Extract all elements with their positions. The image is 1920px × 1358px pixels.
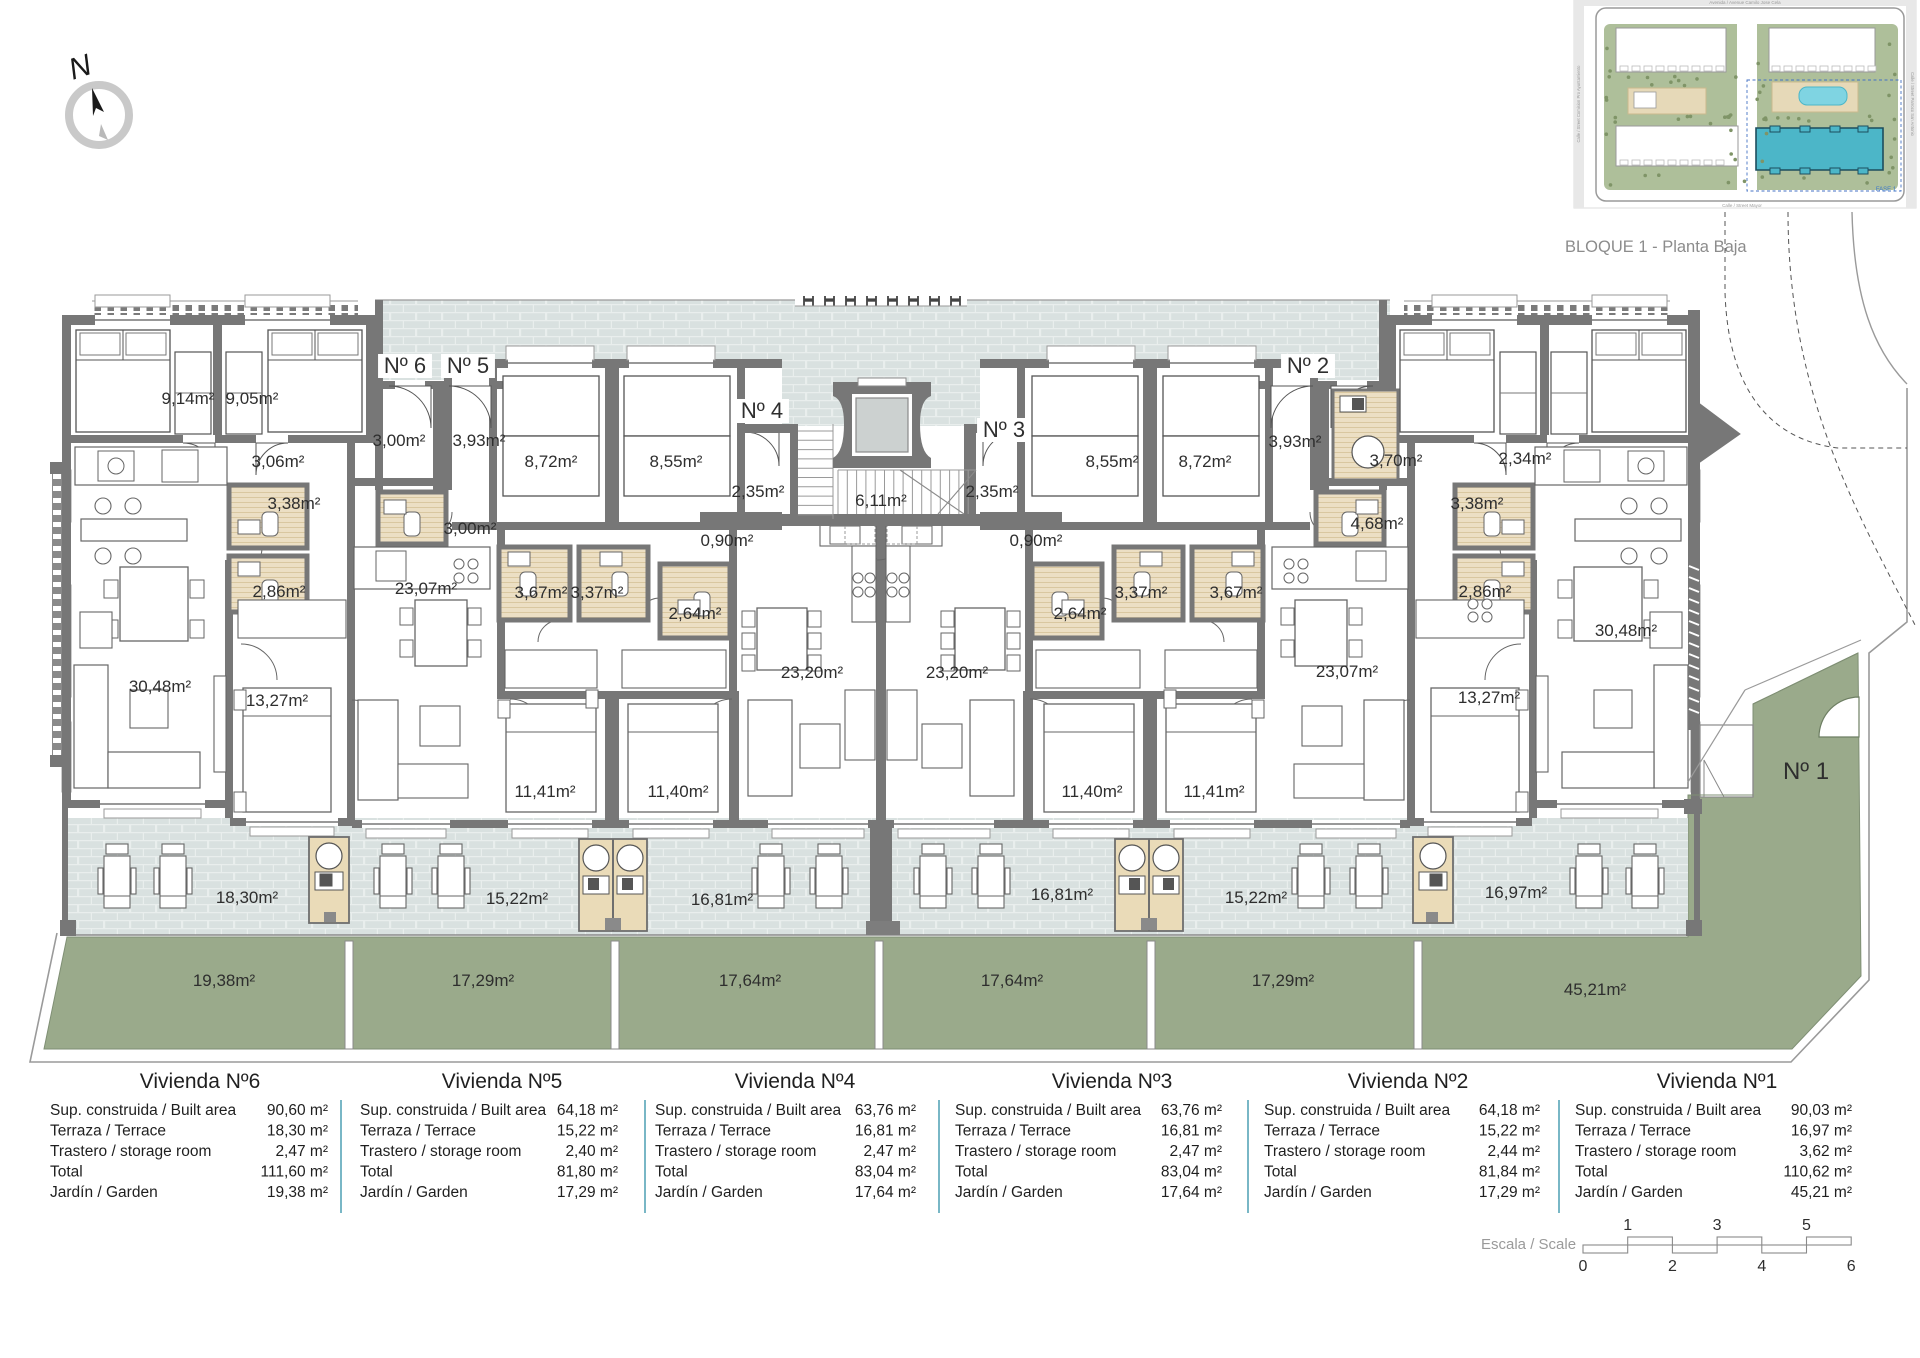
svg-text:17,64m²: 17,64m²: [981, 971, 1044, 990]
svg-text:23,07m²: 23,07m²: [1316, 662, 1379, 681]
svg-text:9,14m²: 9,14m²: [162, 389, 215, 408]
svg-text:Terraza / Terrace: Terraza / Terrace: [1264, 1123, 1380, 1140]
svg-text:23,07m²: 23,07m²: [395, 579, 458, 598]
svg-text:3,70m²: 3,70m²: [1370, 451, 1423, 470]
svg-text:19,38m²: 19,38m²: [193, 971, 256, 990]
svg-text:5: 5: [1802, 1217, 1811, 1234]
svg-text:13,27m²: 13,27m²: [246, 691, 309, 710]
svg-text:Terraza / Terrace: Terraza / Terrace: [955, 1123, 1071, 1140]
svg-text:3,38m²: 3,38m²: [268, 494, 321, 513]
svg-text:30,48m²: 30,48m²: [1595, 621, 1658, 640]
svg-text:83,04 m²: 83,04 m²: [855, 1164, 916, 1181]
svg-text:Nº 3: Nº 3: [983, 417, 1025, 442]
svg-text:15,22m²: 15,22m²: [1225, 888, 1288, 907]
svg-text:11,40m²: 11,40m²: [1061, 782, 1122, 801]
svg-text:2,64m²: 2,64m²: [1054, 604, 1107, 623]
svg-text:15,22m²: 15,22m²: [486, 889, 549, 908]
svg-text:19,38 m²: 19,38 m²: [267, 1184, 328, 1201]
svg-text:81,84 m²: 81,84 m²: [1479, 1164, 1540, 1181]
svg-text:Total: Total: [655, 1164, 688, 1181]
svg-text:18,30 m²: 18,30 m²: [267, 1123, 328, 1140]
svg-text:Avenida / Avenue Camilo Jose C: Avenida / Avenue Camilo Jose Cela: [1709, 0, 1781, 5]
svg-text:2,40 m²: 2,40 m²: [565, 1143, 618, 1160]
svg-text:16,97m²: 16,97m²: [1485, 883, 1548, 902]
svg-text:2,35m²: 2,35m²: [966, 482, 1019, 501]
svg-text:Vivienda Nº2: Vivienda Nº2: [1348, 1070, 1469, 1093]
svg-text:11,41m²: 11,41m²: [1183, 782, 1244, 801]
svg-text:3,93m²: 3,93m²: [453, 431, 506, 450]
svg-text:2,34m²: 2,34m²: [1499, 449, 1552, 468]
svg-text:63,76 m²: 63,76 m²: [855, 1102, 916, 1119]
svg-text:8,72m²: 8,72m²: [525, 452, 578, 471]
svg-text:15,22 m²: 15,22 m²: [557, 1123, 618, 1140]
svg-text:Nº 1: Nº 1: [1783, 758, 1829, 785]
svg-text:17,64 m²: 17,64 m²: [855, 1184, 916, 1201]
svg-text:Vivienda Nº5: Vivienda Nº5: [442, 1070, 563, 1093]
svg-text:23,20m²: 23,20m²: [926, 663, 989, 682]
svg-text:Terraza / Terrace: Terraza / Terrace: [655, 1123, 771, 1140]
svg-text:3,93m²: 3,93m²: [1269, 432, 1322, 451]
svg-text:Trastero / storage room: Trastero / storage room: [1575, 1143, 1736, 1160]
svg-text:2,47 m²: 2,47 m²: [863, 1143, 916, 1160]
svg-text:64,18 m²: 64,18 m²: [557, 1102, 618, 1119]
svg-text:83,04 m²: 83,04 m²: [1161, 1164, 1222, 1181]
svg-text:Sup. construida / Built area: Sup. construida / Built area: [1575, 1102, 1761, 1119]
svg-text:16,81 m²: 16,81 m²: [855, 1123, 916, 1140]
svg-text:23,20m²: 23,20m²: [781, 663, 844, 682]
svg-text:Total: Total: [955, 1164, 988, 1181]
svg-text:16,81m²: 16,81m²: [691, 890, 754, 909]
svg-text:Total: Total: [360, 1164, 393, 1181]
svg-text:6: 6: [1847, 1258, 1856, 1275]
svg-text:8,55m²: 8,55m²: [650, 452, 703, 471]
svg-text:Jardín / Garden: Jardín / Garden: [1264, 1184, 1372, 1201]
svg-text:Terraza / Terrace: Terraza / Terrace: [1575, 1123, 1691, 1140]
svg-text:Trastero / storage room: Trastero / storage room: [655, 1143, 816, 1160]
svg-text:3,06m²: 3,06m²: [252, 452, 305, 471]
svg-text:Nº 5: Nº 5: [447, 353, 489, 378]
svg-text:Escala / Scale: Escala / Scale: [1481, 1236, 1576, 1253]
svg-text:Total: Total: [1264, 1164, 1297, 1181]
svg-text:13,27m²: 13,27m²: [1458, 688, 1521, 707]
svg-text:Trastero / storage room: Trastero / storage room: [360, 1143, 521, 1160]
svg-text:3,00m²: 3,00m²: [373, 431, 426, 450]
svg-text:Vivienda Nº1: Vivienda Nº1: [1657, 1070, 1778, 1093]
svg-text:4: 4: [1757, 1258, 1766, 1275]
svg-text:45,21 m²: 45,21 m²: [1791, 1184, 1852, 1201]
svg-text:18,30m²: 18,30m²: [216, 888, 279, 907]
svg-text:Jardín / Garden: Jardín / Garden: [955, 1184, 1063, 1201]
svg-text:2,35m²: 2,35m²: [732, 482, 785, 501]
svg-text:Jardín / Garden: Jardín / Garden: [360, 1184, 468, 1201]
svg-text:15,22 m²: 15,22 m²: [1479, 1123, 1540, 1140]
svg-text:Sup. construida / Built area: Sup. construida / Built area: [360, 1102, 546, 1119]
svg-text:Nº 2: Nº 2: [1287, 353, 1329, 378]
svg-text:Calle / Street Mayor: Calle / Street Mayor: [1722, 203, 1762, 208]
svg-text:6,11m²: 6,11m²: [855, 491, 907, 510]
svg-text:Trastero / storage room: Trastero / storage room: [50, 1143, 211, 1160]
svg-text:Jardín / Garden: Jardín / Garden: [1575, 1184, 1683, 1201]
svg-text:111,60 m²: 111,60 m²: [261, 1164, 329, 1181]
svg-text:17,29 m²: 17,29 m²: [1479, 1184, 1540, 1201]
svg-text:3,38m²: 3,38m²: [1451, 494, 1504, 513]
svg-text:Trastero / storage room: Trastero / storage room: [955, 1143, 1116, 1160]
svg-text:3,00m²: 3,00m²: [444, 519, 497, 538]
svg-text:2,86m²: 2,86m²: [1459, 582, 1512, 601]
svg-text:Sup. construida / Built area: Sup. construida / Built area: [655, 1102, 841, 1119]
svg-text:Trastero / storage room: Trastero / storage room: [1264, 1143, 1425, 1160]
svg-text:17,29 m²: 17,29 m²: [557, 1184, 618, 1201]
svg-text:16,97 m²: 16,97 m²: [1791, 1123, 1852, 1140]
svg-text:Terraza / Terrace: Terraza / Terrace: [50, 1123, 166, 1140]
svg-text:3,67m²: 3,67m²: [515, 583, 568, 602]
svg-text:64,18 m²: 64,18 m²: [1479, 1102, 1540, 1119]
svg-text:Vivienda Nº6: Vivienda Nº6: [140, 1070, 261, 1093]
svg-text:8,72m²: 8,72m²: [1179, 452, 1232, 471]
svg-text:Jardín / Garden: Jardín / Garden: [50, 1184, 158, 1201]
svg-text:81,80 m²: 81,80 m²: [557, 1164, 618, 1181]
svg-text:3,62 m²: 3,62 m²: [1799, 1143, 1852, 1160]
svg-text:63,76 m²: 63,76 m²: [1161, 1102, 1222, 1119]
svg-text:1: 1: [1623, 1217, 1632, 1234]
svg-text:90,60 m²: 90,60 m²: [267, 1102, 328, 1119]
svg-text:Calle / Street Parroco San Ant: Calle / Street Parroco San Antonio: [1910, 72, 1915, 136]
svg-text:Nº 6: Nº 6: [384, 353, 426, 378]
svg-text:17,64m²: 17,64m²: [719, 971, 782, 990]
svg-text:0: 0: [1579, 1258, 1588, 1275]
svg-text:Jardín / Garden: Jardín / Garden: [655, 1184, 763, 1201]
svg-text:3,67m²: 3,67m²: [1210, 583, 1263, 602]
svg-text:FASE 1: FASE 1: [1876, 187, 1897, 193]
svg-text:17,64 m²: 17,64 m²: [1161, 1184, 1222, 1201]
svg-text:0,90m²: 0,90m²: [1010, 531, 1063, 550]
svg-text:17,29m²: 17,29m²: [452, 971, 515, 990]
svg-text:16,81m²: 16,81m²: [1031, 885, 1094, 904]
svg-text:2,47 m²: 2,47 m²: [275, 1143, 328, 1160]
svg-text:0,90m²: 0,90m²: [701, 531, 754, 550]
svg-text:2,86m²: 2,86m²: [253, 582, 306, 601]
svg-text:8,55m²: 8,55m²: [1086, 452, 1139, 471]
svg-text:11,41m²: 11,41m²: [514, 782, 575, 801]
svg-text:Sup. construida / Built area: Sup. construida / Built area: [955, 1102, 1141, 1119]
svg-text:110,62 m²: 110,62 m²: [1783, 1164, 1852, 1181]
svg-text:Vivienda Nº3: Vivienda Nº3: [1052, 1070, 1173, 1093]
svg-text:2: 2: [1668, 1258, 1677, 1275]
svg-text:2,47 m²: 2,47 m²: [1169, 1143, 1222, 1160]
svg-text:9,05m²: 9,05m²: [226, 389, 279, 408]
svg-text:45,21m²: 45,21m²: [1564, 980, 1627, 999]
svg-text:17,29m²: 17,29m²: [1252, 971, 1315, 990]
svg-text:16,81 m²: 16,81 m²: [1161, 1123, 1222, 1140]
svg-text:2,64m²: 2,64m²: [669, 604, 722, 623]
svg-text:4,68m²: 4,68m²: [1351, 514, 1404, 533]
svg-text:3: 3: [1713, 1217, 1722, 1234]
svg-text:3,37m²: 3,37m²: [571, 583, 624, 602]
svg-text:Terraza / Terrace: Terraza / Terrace: [360, 1123, 476, 1140]
svg-text:11,40m²: 11,40m²: [647, 782, 708, 801]
svg-text:90,03 m²: 90,03 m²: [1791, 1102, 1852, 1119]
svg-text:2,44 m²: 2,44 m²: [1487, 1143, 1540, 1160]
svg-text:30,48m²: 30,48m²: [129, 677, 192, 696]
svg-text:3,37m²: 3,37m²: [1115, 583, 1168, 602]
svg-text:Sup. construida / Built area: Sup. construida / Built area: [50, 1102, 236, 1119]
svg-text:Nº 4: Nº 4: [741, 398, 783, 423]
svg-text:Vivienda Nº4: Vivienda Nº4: [735, 1070, 856, 1093]
svg-text:Total: Total: [1575, 1164, 1608, 1181]
svg-text:Calle / Street Comision Pro Ay: Calle / Street Comision Pro Ayuntamiento: [1576, 65, 1581, 143]
svg-text:Sup. construida / Built area: Sup. construida / Built area: [1264, 1102, 1450, 1119]
svg-text:BLOQUE 1 - Planta Baja: BLOQUE 1 - Planta Baja: [1565, 238, 1747, 256]
svg-text:Total: Total: [50, 1164, 83, 1181]
